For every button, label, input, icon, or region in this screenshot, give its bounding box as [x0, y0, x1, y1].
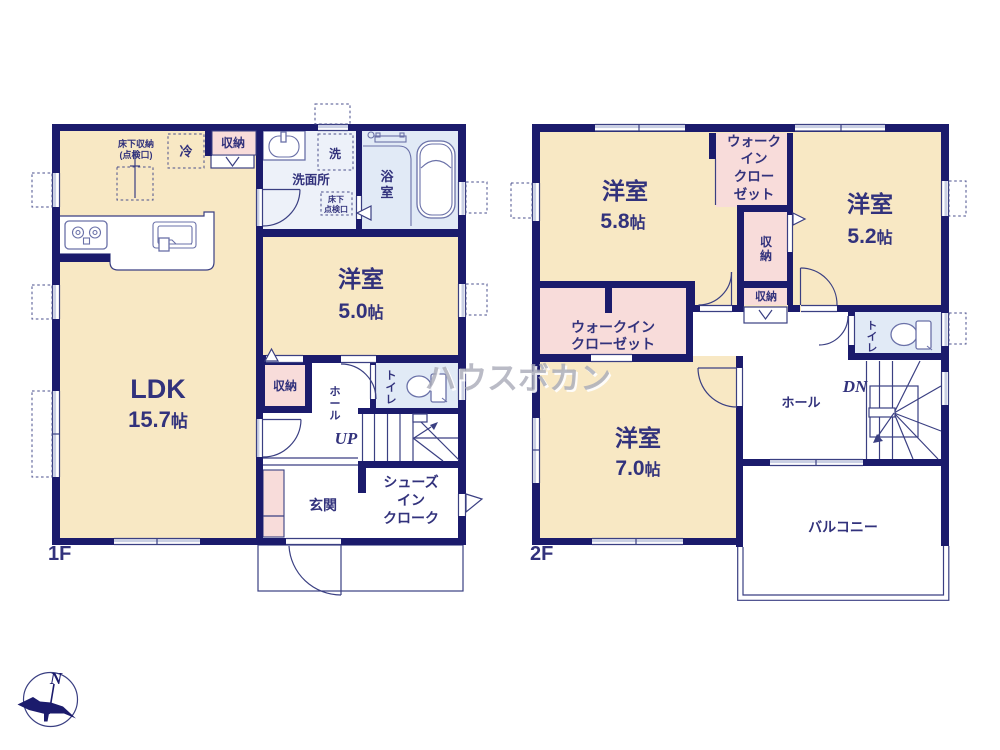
svg-text:イン: イン [741, 151, 768, 166]
svg-text:室: 室 [380, 185, 393, 200]
svg-text:玄関: 玄関 [309, 497, 337, 513]
svg-text:洋室: 洋室 [338, 266, 384, 292]
svg-text:ハウスボカン: ハウスボカン [425, 361, 611, 396]
svg-text:クロー: クロー [734, 169, 775, 184]
svg-text:床下: 床下 [328, 194, 344, 204]
svg-text:クローク: クローク [383, 510, 439, 526]
svg-text:レ: レ [867, 342, 878, 354]
svg-text:クローゼット: クローゼット [571, 336, 655, 352]
svg-text:イン: イン [397, 492, 425, 508]
svg-text:バルコニー: バルコニー [808, 519, 878, 535]
svg-text:納: 納 [760, 248, 772, 263]
svg-text:DN: DN [842, 377, 868, 396]
svg-text:シューズ: シューズ [383, 474, 438, 490]
svg-text:点検口: 点検口 [324, 204, 348, 214]
svg-text:UP: UP [335, 429, 358, 448]
svg-text:ウォーク: ウォーク [727, 134, 781, 149]
svg-text:イ: イ [386, 381, 397, 394]
svg-text:収納: 収納 [273, 378, 297, 393]
svg-text:ホール: ホール [781, 395, 820, 410]
svg-text:収納: 収納 [755, 289, 777, 303]
svg-text:2F: 2F [530, 543, 553, 565]
svg-text:冷: 冷 [179, 144, 192, 159]
svg-text:ホ: ホ [330, 385, 341, 398]
svg-text:ゼット: ゼット [734, 186, 775, 202]
svg-text:洗: 洗 [329, 146, 341, 161]
svg-text:収納: 収納 [221, 135, 245, 150]
svg-text:洋室: 洋室 [615, 425, 661, 451]
svg-text:ー: ー [330, 398, 341, 410]
svg-text:洋室: 洋室 [847, 191, 893, 217]
svg-text:LDK: LDK [130, 374, 186, 404]
svg-text:洗面所: 洗面所 [292, 172, 330, 187]
svg-text:ル: ル [330, 410, 341, 422]
svg-text:レ: レ [386, 394, 397, 406]
svg-text:床下収納: 床下収納 [118, 138, 154, 149]
svg-text:1F: 1F [48, 543, 71, 565]
svg-text:収: 収 [760, 235, 773, 249]
svg-text:ト: ト [386, 369, 397, 382]
svg-text:(点検口): (点検口) [120, 149, 153, 160]
svg-text:浴: 浴 [380, 169, 394, 184]
svg-text:ウォークイン: ウォークイン [571, 319, 655, 335]
svg-text:洋室: 洋室 [602, 178, 648, 204]
svg-text:N: N [49, 669, 63, 688]
